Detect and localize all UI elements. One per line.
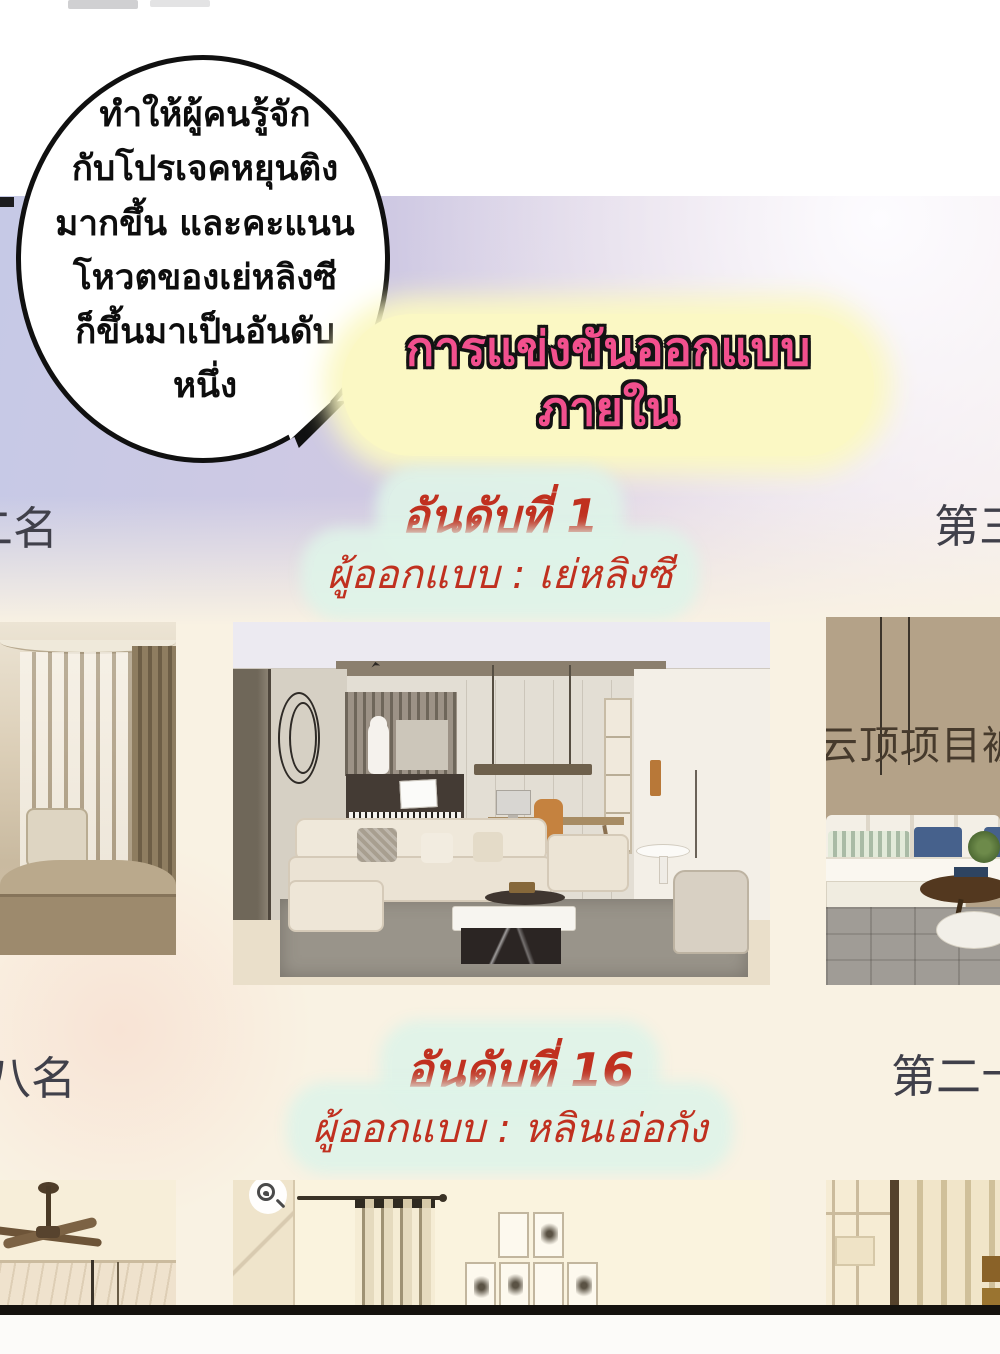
curtain-grommets	[355, 1199, 435, 1208]
bubble-line: มากขึ้น และคะแนน	[40, 197, 370, 251]
wall-clock-inner	[289, 702, 317, 774]
tray-box	[509, 882, 535, 893]
armchair	[26, 808, 88, 868]
pillow	[357, 828, 397, 862]
bear-figurine	[368, 722, 389, 774]
window-glass	[233, 669, 271, 927]
comic-page: ทำให้ผู้คนรู้จัก กับโปรเจคหยุนติง มากขึ้…	[0, 0, 1000, 1354]
bubble-line: ก็ขึ้นมาเป็นอันดับ	[40, 305, 370, 359]
picture-frame	[567, 1262, 598, 1307]
cropped-top-text-fragment	[68, 0, 138, 9]
frame-art	[541, 1222, 558, 1246]
right-rank-partial-label: 第三	[934, 490, 1000, 555]
ceiling-beam	[336, 661, 666, 676]
marble-wall	[0, 1260, 176, 1307]
rank1-designer-text: ผู้ออกแบบ : เย่หลิงซี	[313, 540, 687, 608]
picture-frame	[533, 1212, 564, 1258]
image-search-icon-handle	[276, 1199, 286, 1209]
armchair	[673, 870, 749, 954]
picture-frame	[465, 1262, 496, 1307]
fan-motor	[36, 1226, 60, 1238]
desktop-computer	[496, 790, 531, 815]
pendant-wire	[569, 665, 571, 767]
interior-image-left	[0, 622, 176, 955]
frame-art	[508, 1272, 523, 1298]
wall-seam	[117, 1262, 119, 1307]
books	[954, 867, 988, 877]
pillow	[421, 833, 453, 863]
gold-panel	[982, 1256, 1000, 1282]
bubble-line: โหวตของเย่หลิงซี	[40, 251, 370, 305]
frame-art	[474, 1274, 489, 1300]
shelf-column	[604, 698, 632, 854]
page-title-line2: ภายใน	[342, 381, 874, 440]
fan-rod	[46, 1186, 51, 1228]
plant	[968, 831, 1000, 863]
left-rank-partial-label: 八名	[0, 1042, 76, 1107]
bubble-line: ทำให้ผู้คนรู้จัก	[40, 88, 370, 142]
right-rank-partial-label: 第二十	[891, 1040, 1000, 1105]
window-inset	[835, 1236, 875, 1266]
interior-image-gallery-room	[233, 1180, 770, 1307]
pendant-bar-light	[474, 764, 592, 775]
curtain-rod-finial	[439, 1194, 447, 1202]
picture-frame	[498, 1212, 529, 1258]
pendant-wire	[492, 665, 494, 767]
interior-image-rank1	[233, 622, 770, 985]
interior-image-fan-room	[0, 1180, 176, 1307]
sofa-right-section	[547, 834, 629, 892]
speech-bubble-text: ทำให้ผู้คนรู้จัก กับโปรเจคหยุนติง มากขึ้…	[40, 88, 370, 338]
pillow	[473, 832, 503, 862]
footer-margin	[0, 1315, 1000, 1354]
dark-divider	[890, 1180, 899, 1307]
sofa-chaise	[288, 880, 384, 932]
sofa-base	[0, 894, 176, 955]
image-search-icon-detail	[263, 1191, 269, 1196]
slat-opening	[396, 720, 448, 770]
door-frame-line	[826, 1212, 892, 1215]
watermark-text: 云顶项目被	[826, 713, 1000, 771]
interior-image-right: 云顶项目被	[826, 617, 1000, 985]
interior-image-paneled-room	[826, 1180, 1000, 1307]
rank16-designer-text: ผู้ออกแบบ : หลินเอ่อกัง	[299, 1094, 722, 1162]
curtain	[355, 1199, 435, 1307]
left-rank-partial-label: 二名	[0, 492, 58, 557]
picture-frame	[533, 1262, 564, 1307]
rank1-designer: ผู้ออกแบบ : เย่หลิงซี	[215, 540, 785, 608]
floor-lamp	[695, 770, 697, 858]
bottom-rule	[0, 1305, 1000, 1315]
sheet-screen	[399, 779, 437, 809]
rank16-designer: ผู้ออกแบบ : หลินเอ่อกัง	[225, 1094, 795, 1162]
side-table-pedestal	[659, 856, 668, 884]
bubble-line: กับโปรเจคหยุนติง	[40, 142, 370, 196]
frame-art	[576, 1273, 592, 1298]
marble-table-base	[461, 928, 561, 964]
page-title: การแข่งขันออกแบบ ภายใน	[342, 318, 874, 440]
cropped-top-text-fragment	[150, 0, 210, 7]
wood-accent	[650, 760, 661, 796]
panel-border-fragment	[0, 197, 14, 207]
picture-frame	[499, 1262, 530, 1307]
page-title-line1: การแข่งขันออกแบบ	[342, 318, 874, 381]
wall-seam	[91, 1260, 94, 1307]
bubble-line: หนึ่ง	[40, 359, 370, 413]
